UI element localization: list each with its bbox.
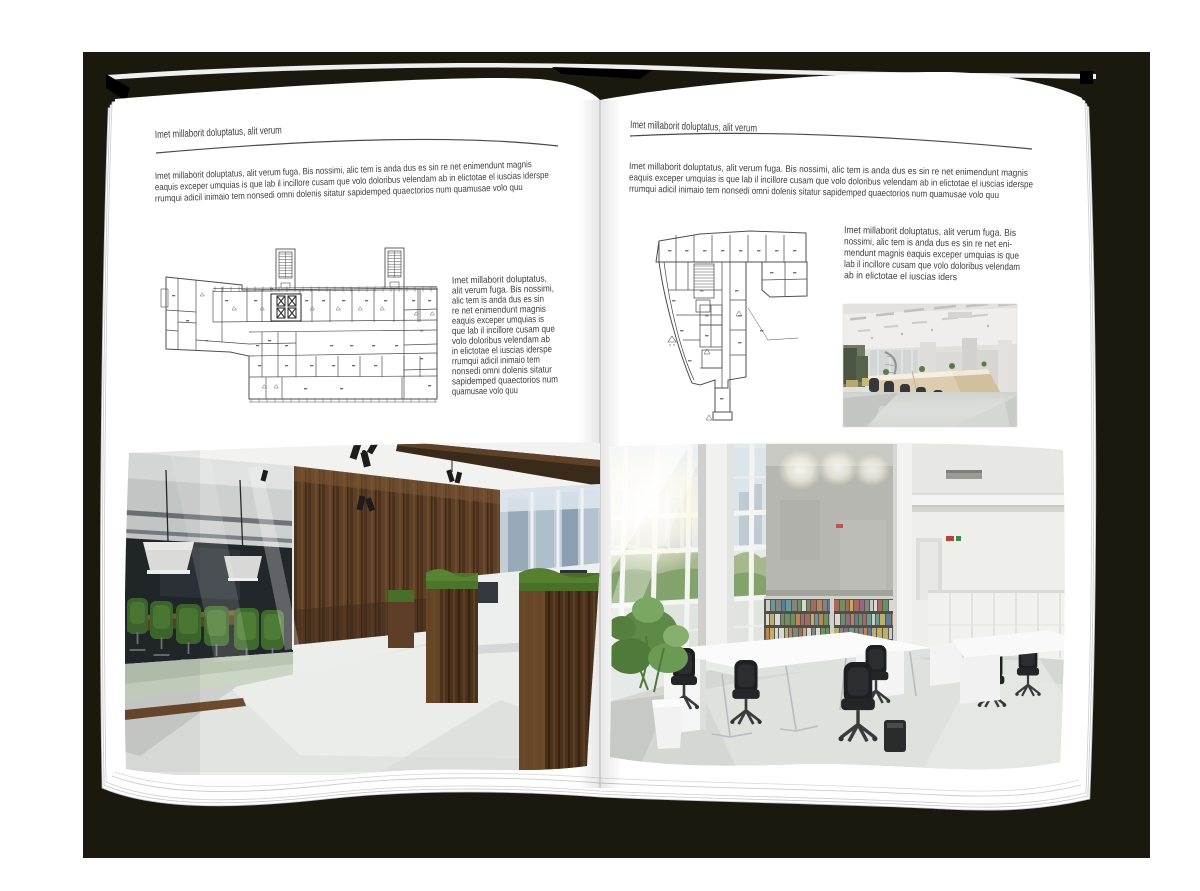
svg-text:ab in elictotae el iuscias ide: ab in elictotae el iuscias iders xyxy=(844,270,957,283)
svg-text:quamusae volo quu: quamusae volo quu xyxy=(452,385,518,397)
